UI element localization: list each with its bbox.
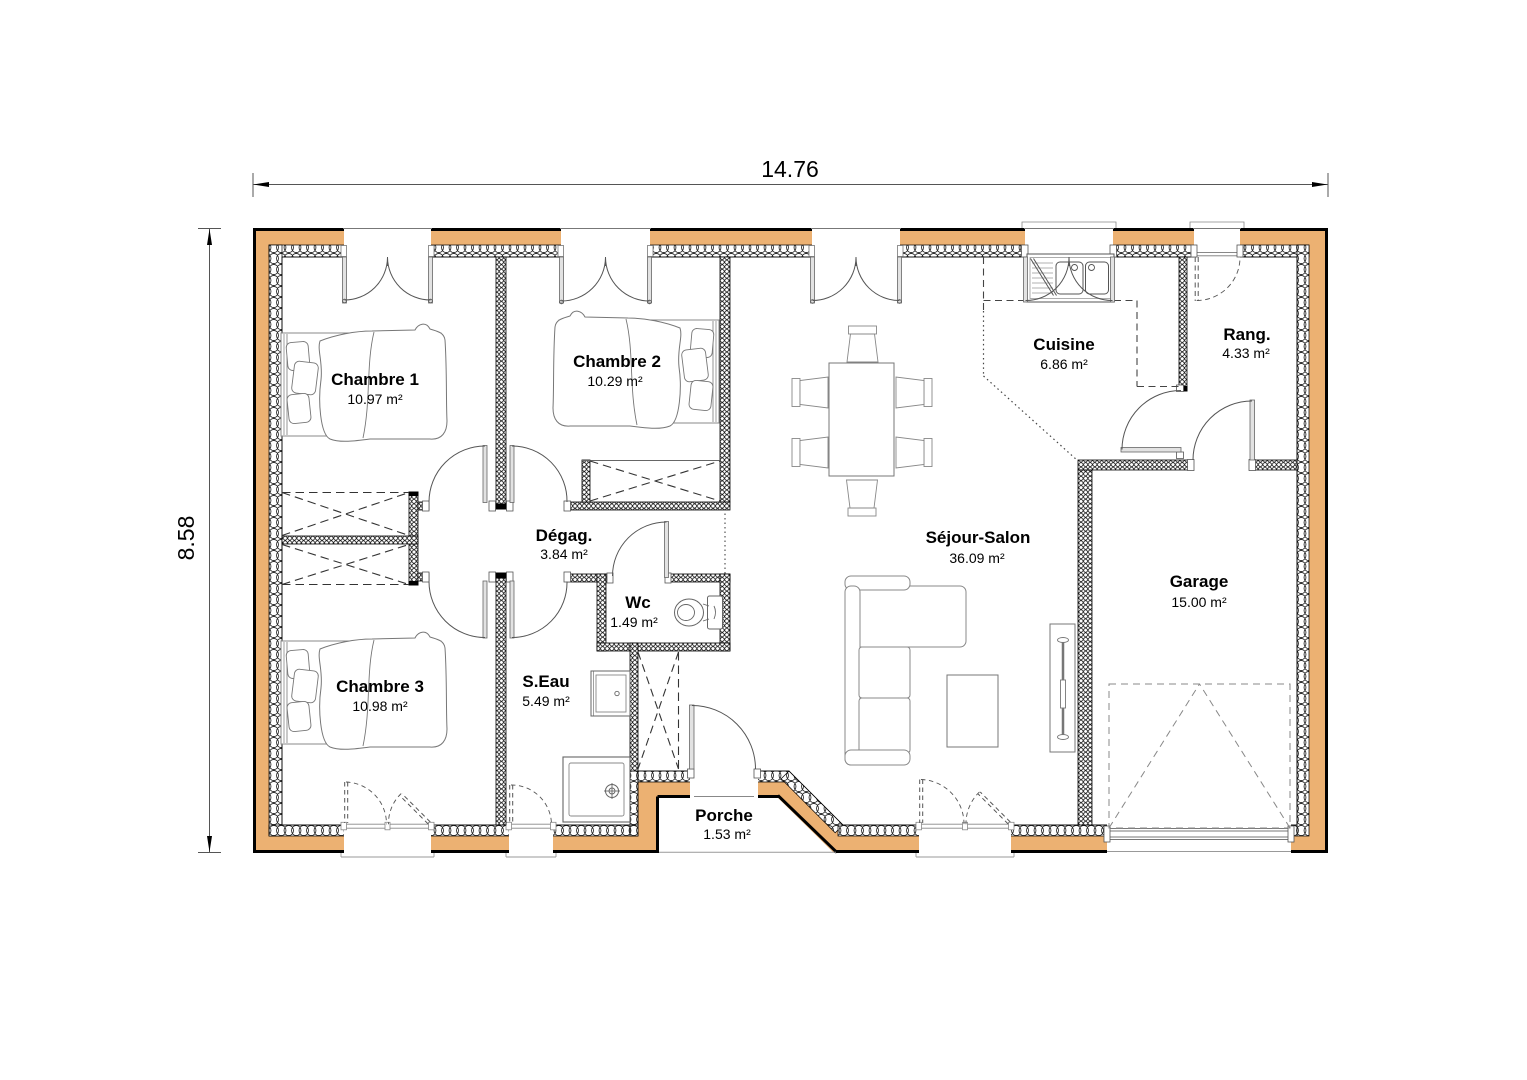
svg-text:Dégag.: Dégag. bbox=[536, 526, 593, 545]
svg-text:Rang.: Rang. bbox=[1223, 325, 1270, 344]
svg-text:1.53 m²: 1.53 m² bbox=[703, 826, 751, 842]
svg-text:Wc: Wc bbox=[625, 593, 651, 612]
svg-text:Chambre 3: Chambre 3 bbox=[336, 677, 424, 696]
svg-text:8.58: 8.58 bbox=[173, 516, 199, 561]
svg-text:Chambre 1: Chambre 1 bbox=[331, 370, 419, 389]
svg-text:1.49 m²: 1.49 m² bbox=[610, 614, 658, 630]
svg-text:Porche: Porche bbox=[695, 806, 753, 825]
svg-text:3.84 m²: 3.84 m² bbox=[540, 546, 588, 562]
svg-text:6.86 m²: 6.86 m² bbox=[1040, 356, 1088, 372]
svg-text:15.00 m²: 15.00 m² bbox=[1171, 594, 1227, 610]
svg-text:10.29 m²: 10.29 m² bbox=[587, 373, 643, 389]
svg-text:14.76: 14.76 bbox=[761, 156, 819, 182]
svg-text:36.09 m²: 36.09 m² bbox=[949, 550, 1005, 566]
svg-text:10.98 m²: 10.98 m² bbox=[352, 698, 408, 714]
svg-text:5.49 m²: 5.49 m² bbox=[522, 693, 570, 709]
svg-text:4.33 m²: 4.33 m² bbox=[1222, 345, 1270, 361]
svg-text:10.97 m²: 10.97 m² bbox=[347, 391, 403, 407]
svg-text:S.Eau: S.Eau bbox=[522, 672, 569, 691]
svg-text:Cuisine: Cuisine bbox=[1033, 335, 1094, 354]
svg-text:Séjour-Salon: Séjour-Salon bbox=[926, 528, 1031, 547]
svg-text:Chambre 2: Chambre 2 bbox=[573, 352, 661, 371]
svg-text:Garage: Garage bbox=[1170, 572, 1229, 591]
